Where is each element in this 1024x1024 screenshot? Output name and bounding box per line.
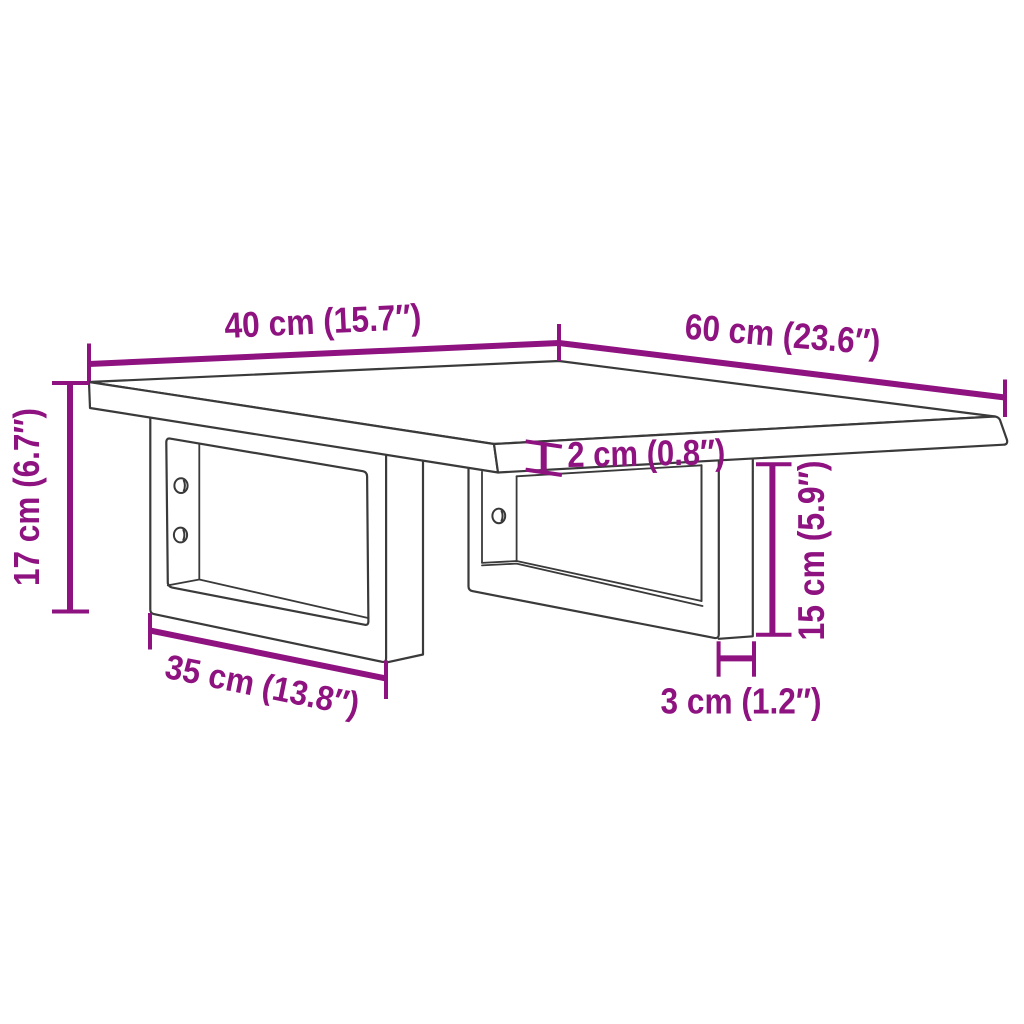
svg-text:2 cm (0.8″): 2 cm (0.8″) bbox=[567, 431, 726, 475]
svg-text:15 cm (5.9″): 15 cm (5.9″) bbox=[791, 461, 832, 641]
svg-text:3 cm (1.2″): 3 cm (1.2″) bbox=[661, 681, 822, 722]
svg-text:17 cm (6.7″): 17 cm (6.7″) bbox=[6, 408, 47, 586]
